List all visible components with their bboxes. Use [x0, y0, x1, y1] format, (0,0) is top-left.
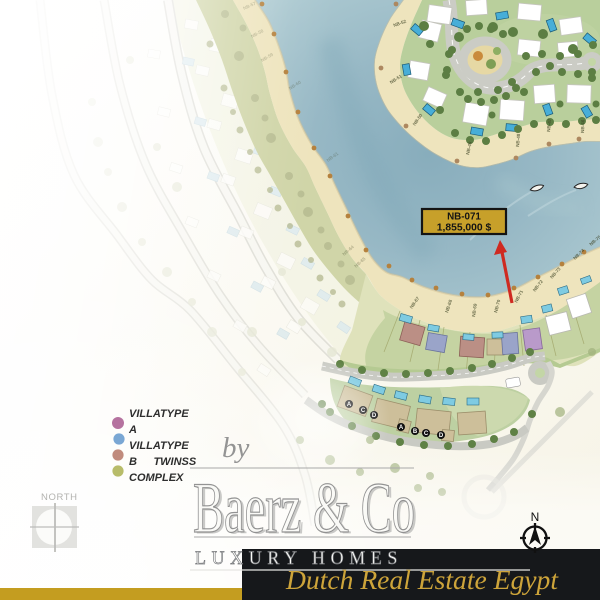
svg-text:NORTH: NORTH — [41, 492, 78, 503]
svg-text:VILLATYPE: VILLATYPE — [129, 408, 189, 420]
svg-text:Dutch Real Estate Egypt: Dutch Real Estate Egypt — [285, 565, 560, 595]
svg-text:by: by — [222, 432, 250, 464]
svg-text:A: A — [128, 424, 137, 436]
svg-text:1,855,000 $: 1,855,000 $ — [437, 223, 492, 234]
svg-text:N: N — [531, 510, 540, 524]
svg-text:Baerz & Co: Baerz & Co — [193, 468, 415, 548]
svg-text:COMPLEX: COMPLEX — [129, 472, 184, 484]
svg-text:NB-071: NB-071 — [447, 212, 481, 223]
svg-text:B TWINSS: B TWINSS — [129, 456, 197, 468]
svg-text:VILLATYPE: VILLATYPE — [129, 440, 189, 452]
